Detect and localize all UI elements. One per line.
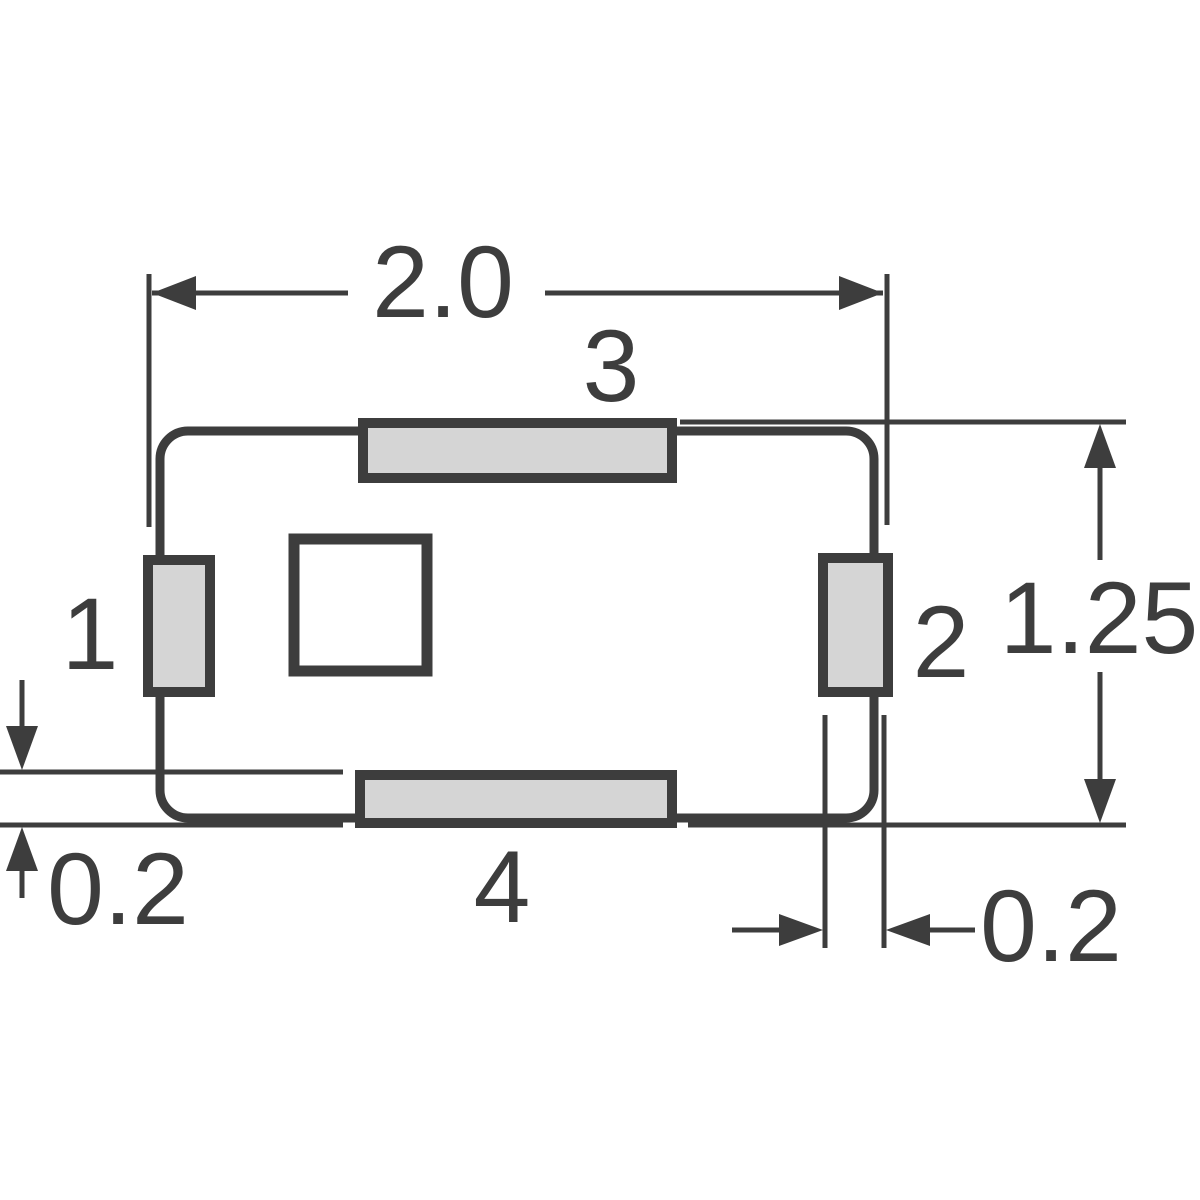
width-arrowhead-right-icon (839, 276, 883, 310)
bottom-right-offset-value: 0.2 (980, 875, 1122, 977)
height-arrowhead-top-icon (1084, 424, 1116, 468)
right-offset-arrowhead-right-icon (779, 914, 823, 946)
component-body-outline (160, 431, 874, 818)
pad-3-label: 3 (583, 315, 640, 417)
left-offset-arrowhead-down-icon (6, 726, 38, 770)
pad-1-left (148, 560, 210, 692)
left-offset-arrowhead-up-icon (6, 827, 38, 871)
pad-4-label: 4 (474, 836, 531, 938)
bottom-left-offset-value: 0.2 (47, 838, 189, 940)
overall-width-value: 2.0 (372, 231, 514, 333)
pad-2-label: 2 (913, 591, 970, 693)
width-arrowhead-left-icon (152, 276, 196, 310)
overall-height-value: 1.25 (1000, 567, 1199, 669)
pad-4-bottom (360, 775, 672, 823)
pad-3-top (363, 423, 672, 478)
polarity-square-mark (294, 539, 427, 671)
pad-1-label: 1 (62, 583, 119, 685)
dimension-drawing-canvas: 2.0 1.25 0.2 0.2 1 2 3 4 (0, 0, 1200, 1200)
right-offset-arrowhead-left-icon (886, 914, 930, 946)
height-arrowhead-bottom-icon (1084, 779, 1116, 823)
pad-2-right (823, 558, 888, 692)
